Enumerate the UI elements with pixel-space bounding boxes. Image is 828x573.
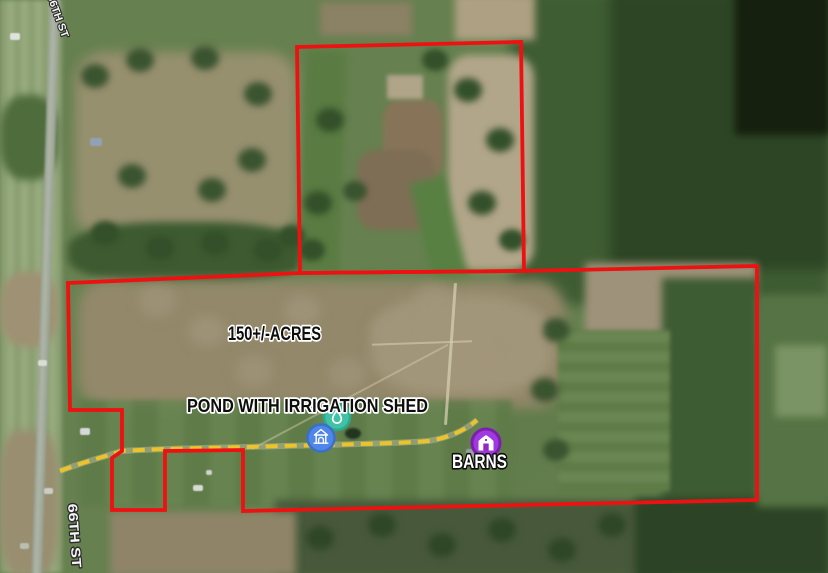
street-label-66th-st-top: 66TH ST [44, 0, 71, 40]
property-boundary-upper [297, 42, 524, 273]
street-label-66th-st-bottom: 66TH ST [65, 503, 84, 568]
acreage-label: 150+/-ACRES [228, 324, 321, 345]
irrigation-shed-marker[interactable] [308, 425, 335, 452]
satellite-map: 150+/-ACRES POND WITH IRRIGATION SHED BA… [0, 0, 828, 573]
property-boundary-main [68, 266, 757, 511]
barns-label: BARNS [452, 452, 507, 473]
annotation-overlay: 150+/-ACRES POND WITH IRRIGATION SHED BA… [0, 0, 828, 573]
pond-shed-label: POND WITH IRRIGATION SHED [187, 396, 428, 416]
